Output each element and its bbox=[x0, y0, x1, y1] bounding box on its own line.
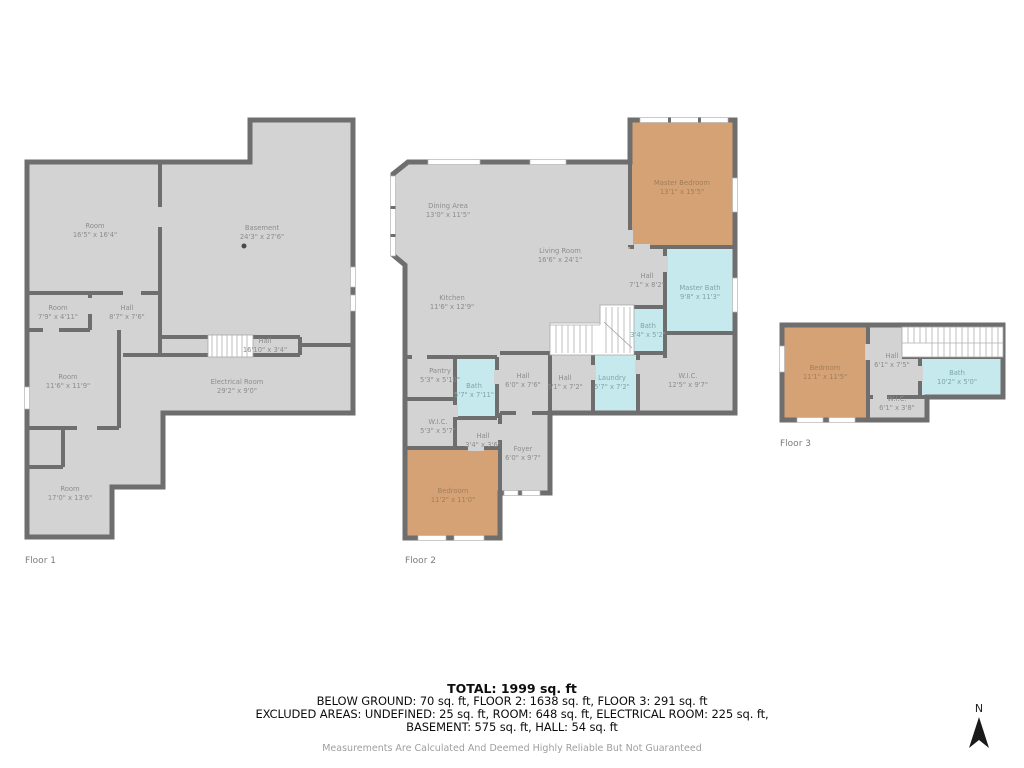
svg-text:5'7" x 7'11": 5'7" x 7'11" bbox=[454, 391, 494, 399]
svg-text:Master Bedroom: Master Bedroom bbox=[654, 179, 710, 187]
svg-text:6'1" x 3'8": 6'1" x 3'8" bbox=[879, 404, 915, 412]
svg-text:5'3" x 5'10": 5'3" x 5'10" bbox=[420, 376, 460, 384]
svg-text:11'6" x 12'9": 11'6" x 12'9" bbox=[430, 303, 474, 311]
svg-text:11'1" x 11'5": 11'1" x 11'5" bbox=[803, 373, 847, 381]
svg-text:12'5" x 9'7": 12'5" x 9'7" bbox=[668, 381, 708, 389]
svg-text:Laundry: Laundry bbox=[598, 374, 626, 382]
svg-text:Hall: Hall bbox=[640, 272, 653, 280]
floor-2-caption: Floor 2 bbox=[405, 556, 436, 566]
svg-text:Hall: Hall bbox=[258, 337, 271, 345]
svg-text:8'7" x 7'6": 8'7" x 7'6" bbox=[109, 313, 145, 321]
svg-text:3'4" x 5'2": 3'4" x 5'2" bbox=[630, 331, 666, 339]
basement-support-post bbox=[242, 244, 247, 249]
svg-text:Room: Room bbox=[58, 373, 78, 381]
north-arrow-icon bbox=[967, 715, 991, 749]
room-label-master-bath: Master Bath 9'8" x 11'3" bbox=[679, 284, 720, 301]
svg-text:16'5" x 16'4": 16'5" x 16'4" bbox=[73, 231, 117, 239]
floorplan-page: Room 16'5" x 16'4" Basement 24'3" x 27'6… bbox=[0, 0, 1024, 768]
svg-text:Pantry: Pantry bbox=[429, 367, 451, 375]
svg-text:3'4" x 3'6": 3'4" x 3'6" bbox=[465, 441, 501, 449]
svg-text:13'0" x 11'5": 13'0" x 11'5" bbox=[426, 211, 470, 219]
svg-text:11'2" x 11'0": 11'2" x 11'0" bbox=[431, 496, 475, 504]
svg-text:W.I.C.: W.I.C. bbox=[678, 372, 697, 380]
svg-text:Bath: Bath bbox=[640, 322, 656, 330]
svg-text:W.I.C.: W.I.C. bbox=[887, 395, 906, 403]
svg-text:6'0" x 7'6": 6'0" x 7'6" bbox=[505, 381, 541, 389]
summary-line-3: BASEMENT: 575 sq. ft, HALL: 54 sq. ft bbox=[0, 721, 1024, 734]
svg-text:Basement: Basement bbox=[245, 224, 280, 232]
svg-text:W.I.C.: W.I.C. bbox=[428, 418, 447, 426]
room-label-laundry: Laundry 5'7" x 7'2" bbox=[594, 374, 630, 391]
svg-text:Room: Room bbox=[60, 485, 80, 493]
svg-text:Dining Area: Dining Area bbox=[428, 202, 468, 210]
svg-text:16'6" x 24'1": 16'6" x 24'1" bbox=[538, 256, 582, 264]
compass-north-label: N bbox=[959, 703, 999, 715]
svg-text:6'1" x 7'5": 6'1" x 7'5" bbox=[874, 361, 910, 369]
room-fill-bath-3 bbox=[918, 355, 1005, 399]
svg-text:9'8" x 11'3": 9'8" x 11'3" bbox=[680, 293, 720, 301]
svg-text:5'3" x 5'7": 5'3" x 5'7" bbox=[420, 427, 456, 435]
room-label-master-bedroom: Master Bedroom 13'1" x 15'5" bbox=[654, 179, 710, 196]
svg-text:16'10" x 3'4": 16'10" x 3'4" bbox=[243, 346, 287, 354]
room-label-basement: Basement 24'3" x 27'6" bbox=[240, 224, 284, 241]
room-label-living-room: Living Room 16'6" x 24'1" bbox=[538, 247, 582, 264]
svg-text:Hall: Hall bbox=[558, 374, 571, 382]
area-summary: TOTAL: 1999 sq. ft BELOW GROUND: 70 sq. … bbox=[0, 682, 1024, 754]
svg-text:Living Room: Living Room bbox=[539, 247, 581, 255]
floor-1-caption: Floor 1 bbox=[25, 556, 56, 566]
svg-text:Kitchen: Kitchen bbox=[439, 294, 465, 302]
floor-3-caption: Floor 3 bbox=[780, 439, 811, 449]
svg-text:Electrical Room: Electrical Room bbox=[211, 378, 264, 386]
svg-text:Room: Room bbox=[48, 304, 68, 312]
svg-text:7'9" x 4'11": 7'9" x 4'11" bbox=[38, 313, 78, 321]
disclaimer-text: Measurements Are Calculated And Deemed H… bbox=[0, 743, 1024, 754]
floor-2-plan: Dining Area 13'0" x 11'5" Living Room 16… bbox=[390, 108, 745, 550]
svg-text:7'1" x 8'2": 7'1" x 8'2" bbox=[629, 281, 665, 289]
svg-text:Hall: Hall bbox=[120, 304, 133, 312]
room-label-dining-area: Dining Area 13'0" x 11'5" bbox=[426, 202, 470, 219]
svg-text:17'0" x 13'6": 17'0" x 13'6" bbox=[48, 494, 92, 502]
svg-text:Bedroom: Bedroom bbox=[438, 487, 469, 495]
svg-text:Foyer: Foyer bbox=[514, 445, 533, 453]
svg-text:10'2" x 5'0": 10'2" x 5'0" bbox=[937, 378, 977, 386]
svg-text:29'2" x 9'0": 29'2" x 9'0" bbox=[217, 387, 257, 395]
floor-3-plan: Bedroom 11'1" x 11'5" Hall 6'1" x 7'5" B… bbox=[775, 318, 1010, 435]
svg-text:Hall: Hall bbox=[885, 352, 898, 360]
svg-text:11'6" x 11'9": 11'6" x 11'9" bbox=[46, 382, 90, 390]
svg-text:Bath: Bath bbox=[949, 369, 965, 377]
floor-3-stairs bbox=[902, 327, 1003, 357]
svg-text:Hall: Hall bbox=[476, 432, 489, 440]
svg-text:24'3" x 27'6": 24'3" x 27'6" bbox=[240, 233, 284, 241]
svg-text:Room: Room bbox=[85, 222, 105, 230]
svg-text:Bedroom: Bedroom bbox=[810, 364, 841, 372]
svg-text:5'1" x 7'2": 5'1" x 7'2" bbox=[547, 383, 583, 391]
floor-1-plan: Room 16'5" x 16'4" Basement 24'3" x 27'6… bbox=[25, 115, 355, 550]
svg-text:5'7" x 7'2": 5'7" x 7'2" bbox=[594, 383, 630, 391]
svg-text:6'0" x 9'7": 6'0" x 9'7" bbox=[505, 454, 541, 462]
svg-text:13'1" x 15'5": 13'1" x 15'5" bbox=[660, 188, 704, 196]
room-label-electrical-room: Electrical Room 29'2" x 9'0" bbox=[211, 378, 264, 395]
compass: N bbox=[959, 703, 999, 753]
svg-text:Master Bath: Master Bath bbox=[679, 284, 720, 292]
room-fill-bath-small bbox=[630, 305, 667, 355]
svg-text:Bath: Bath bbox=[466, 382, 482, 390]
svg-text:Hall: Hall bbox=[516, 372, 529, 380]
